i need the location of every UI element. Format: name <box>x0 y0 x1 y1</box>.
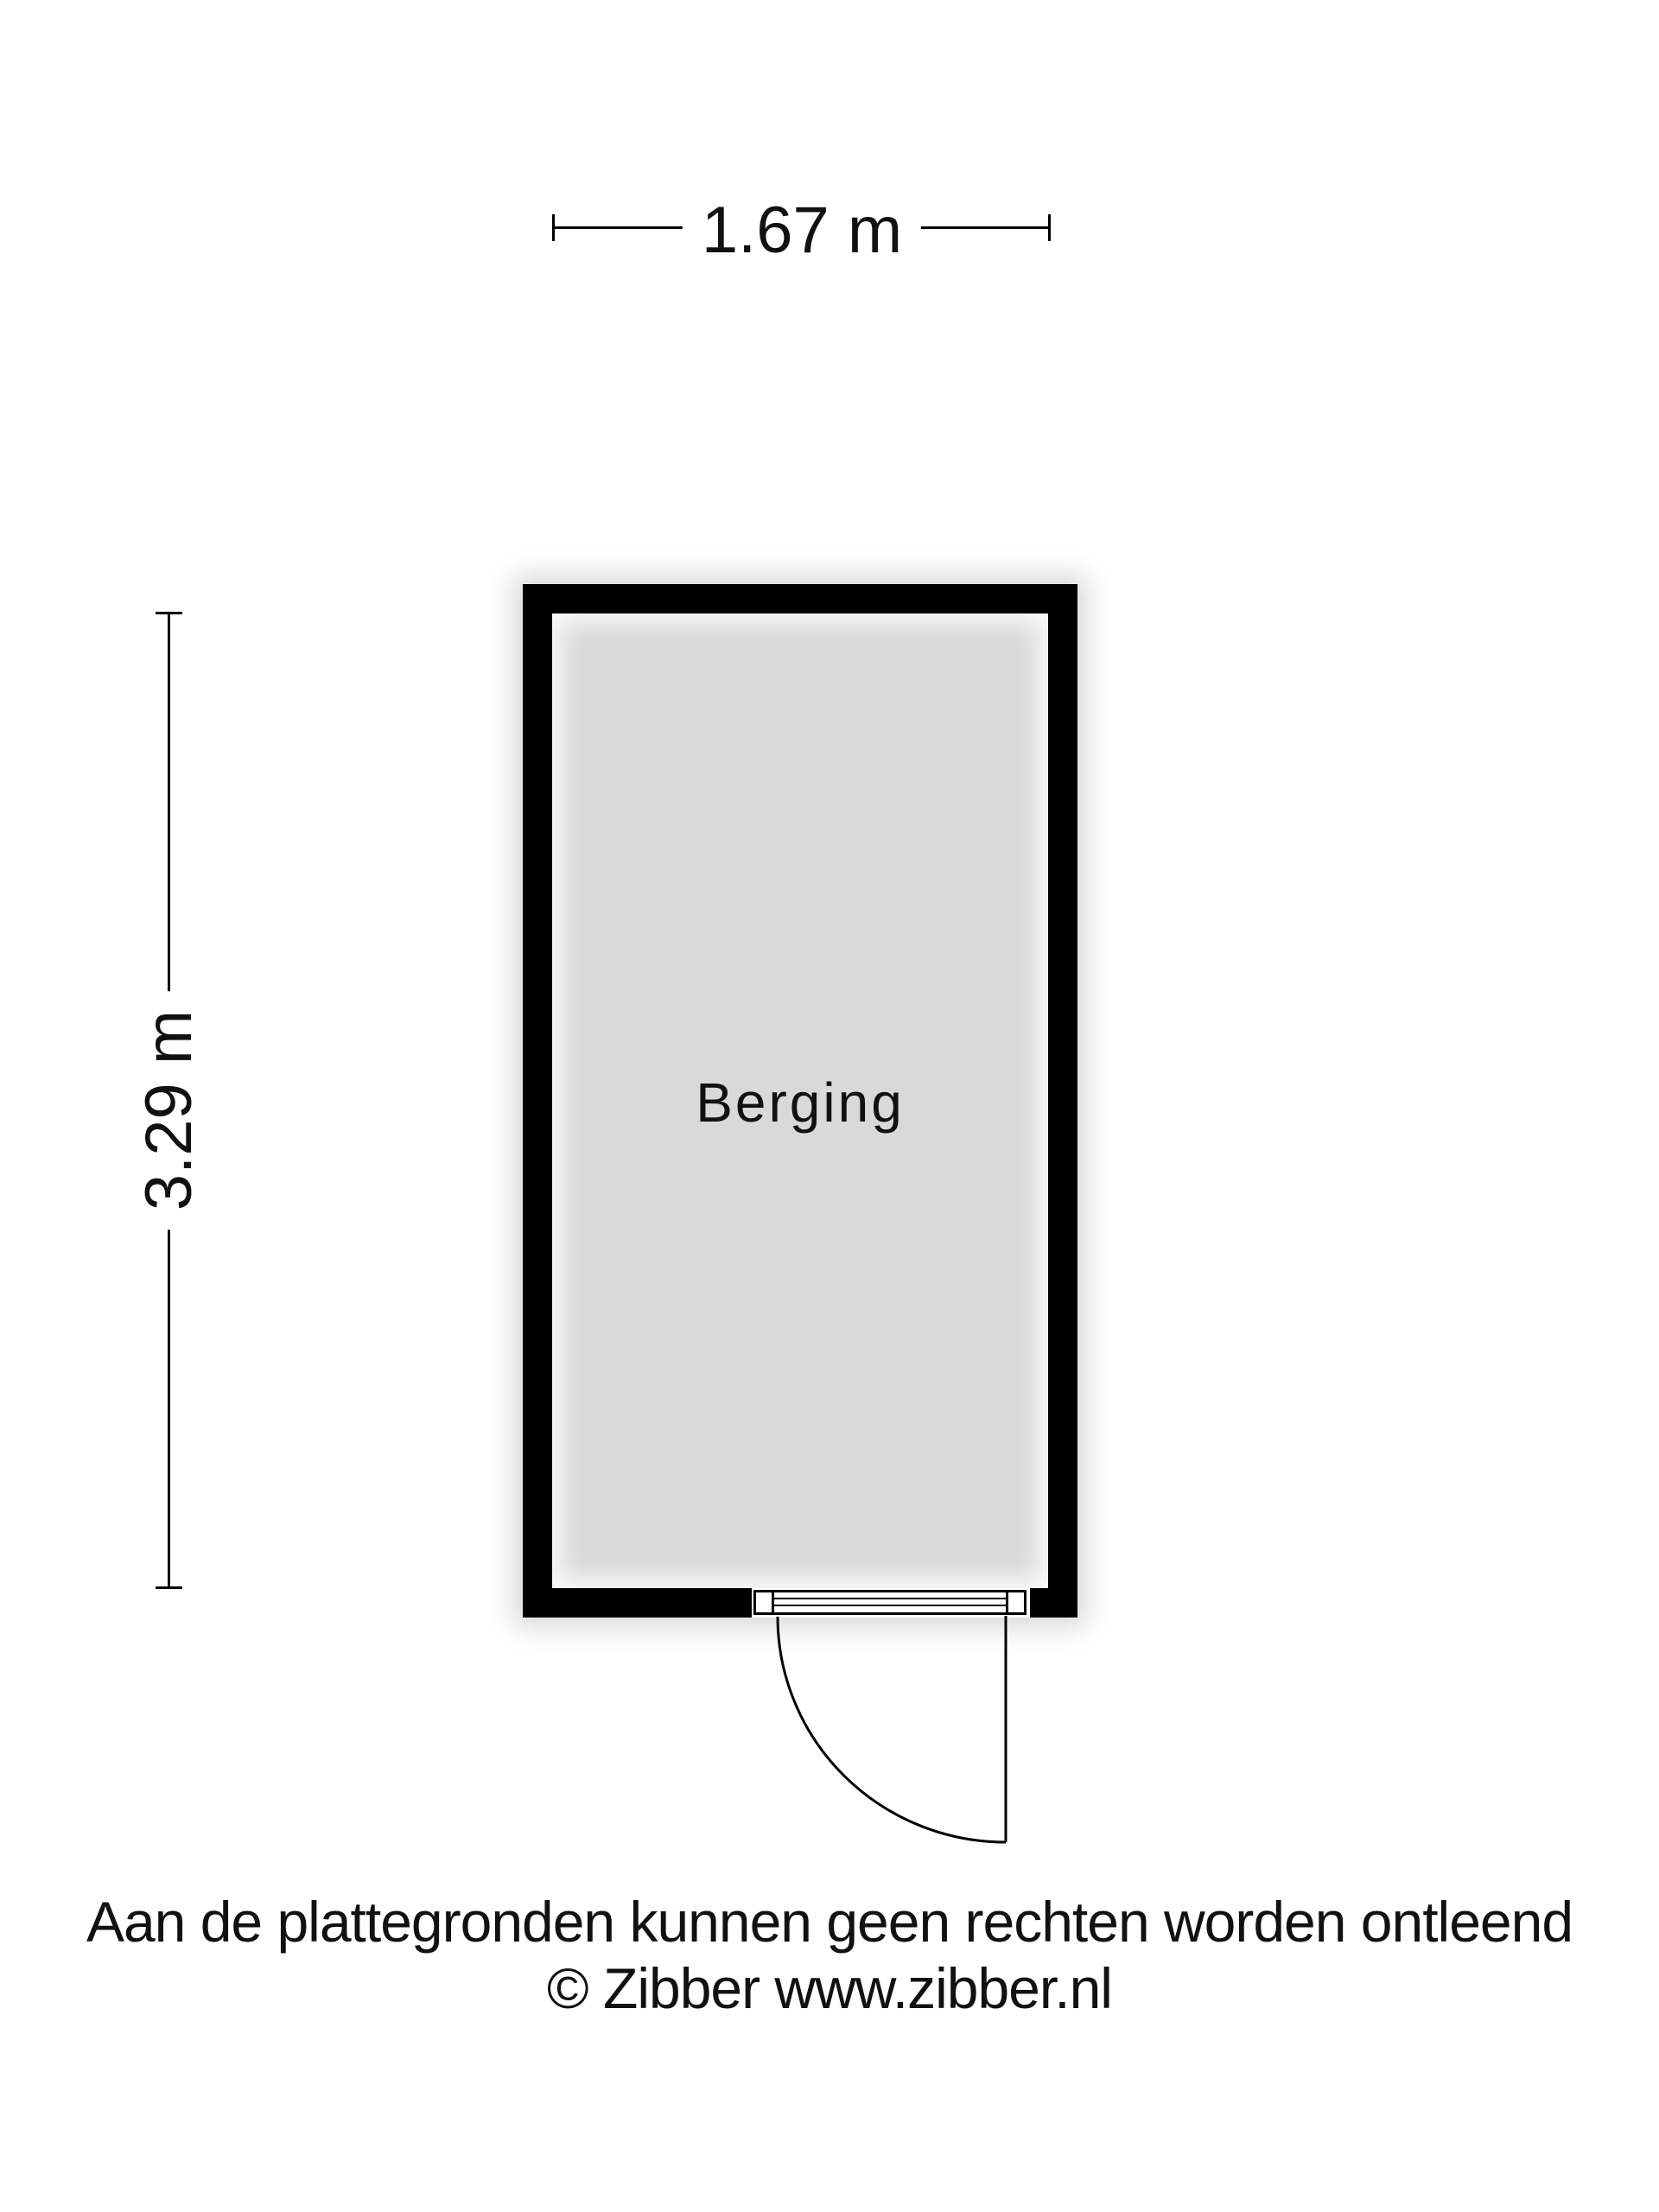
room-outline: Berging <box>523 584 1077 1618</box>
width-dimension-tick-left <box>552 214 555 241</box>
door-sill-line <box>774 1605 1006 1606</box>
height-dimension-label: 3.29 m <box>137 991 202 1230</box>
disclaimer-text: Aan de plattegronden kunnen geen rechten… <box>0 1889 1659 1955</box>
room-floor: Berging <box>552 613 1048 1588</box>
door-jamb-right <box>1006 1590 1027 1615</box>
floorplan-page: 1.67 m 3.29 m Berging Aan de plattegrond… <box>0 0 1659 2212</box>
door-sill-line <box>774 1598 1006 1599</box>
room-label: Berging <box>696 1075 905 1130</box>
door-swing-arc <box>778 1617 1006 1842</box>
door-sill <box>774 1590 1006 1615</box>
door-jamb-left <box>753 1590 774 1615</box>
height-dimension-tick-bottom <box>156 1586 182 1589</box>
width-dimension-label: 1.67 m <box>683 198 921 264</box>
width-dimension-tick-right <box>1048 214 1051 241</box>
footer: Aan de plattegronden kunnen geen rechten… <box>0 1889 1659 2022</box>
height-dimension-tick-top <box>156 612 182 614</box>
copyright-text: © Zibber www.zibber.nl <box>0 1955 1659 2022</box>
